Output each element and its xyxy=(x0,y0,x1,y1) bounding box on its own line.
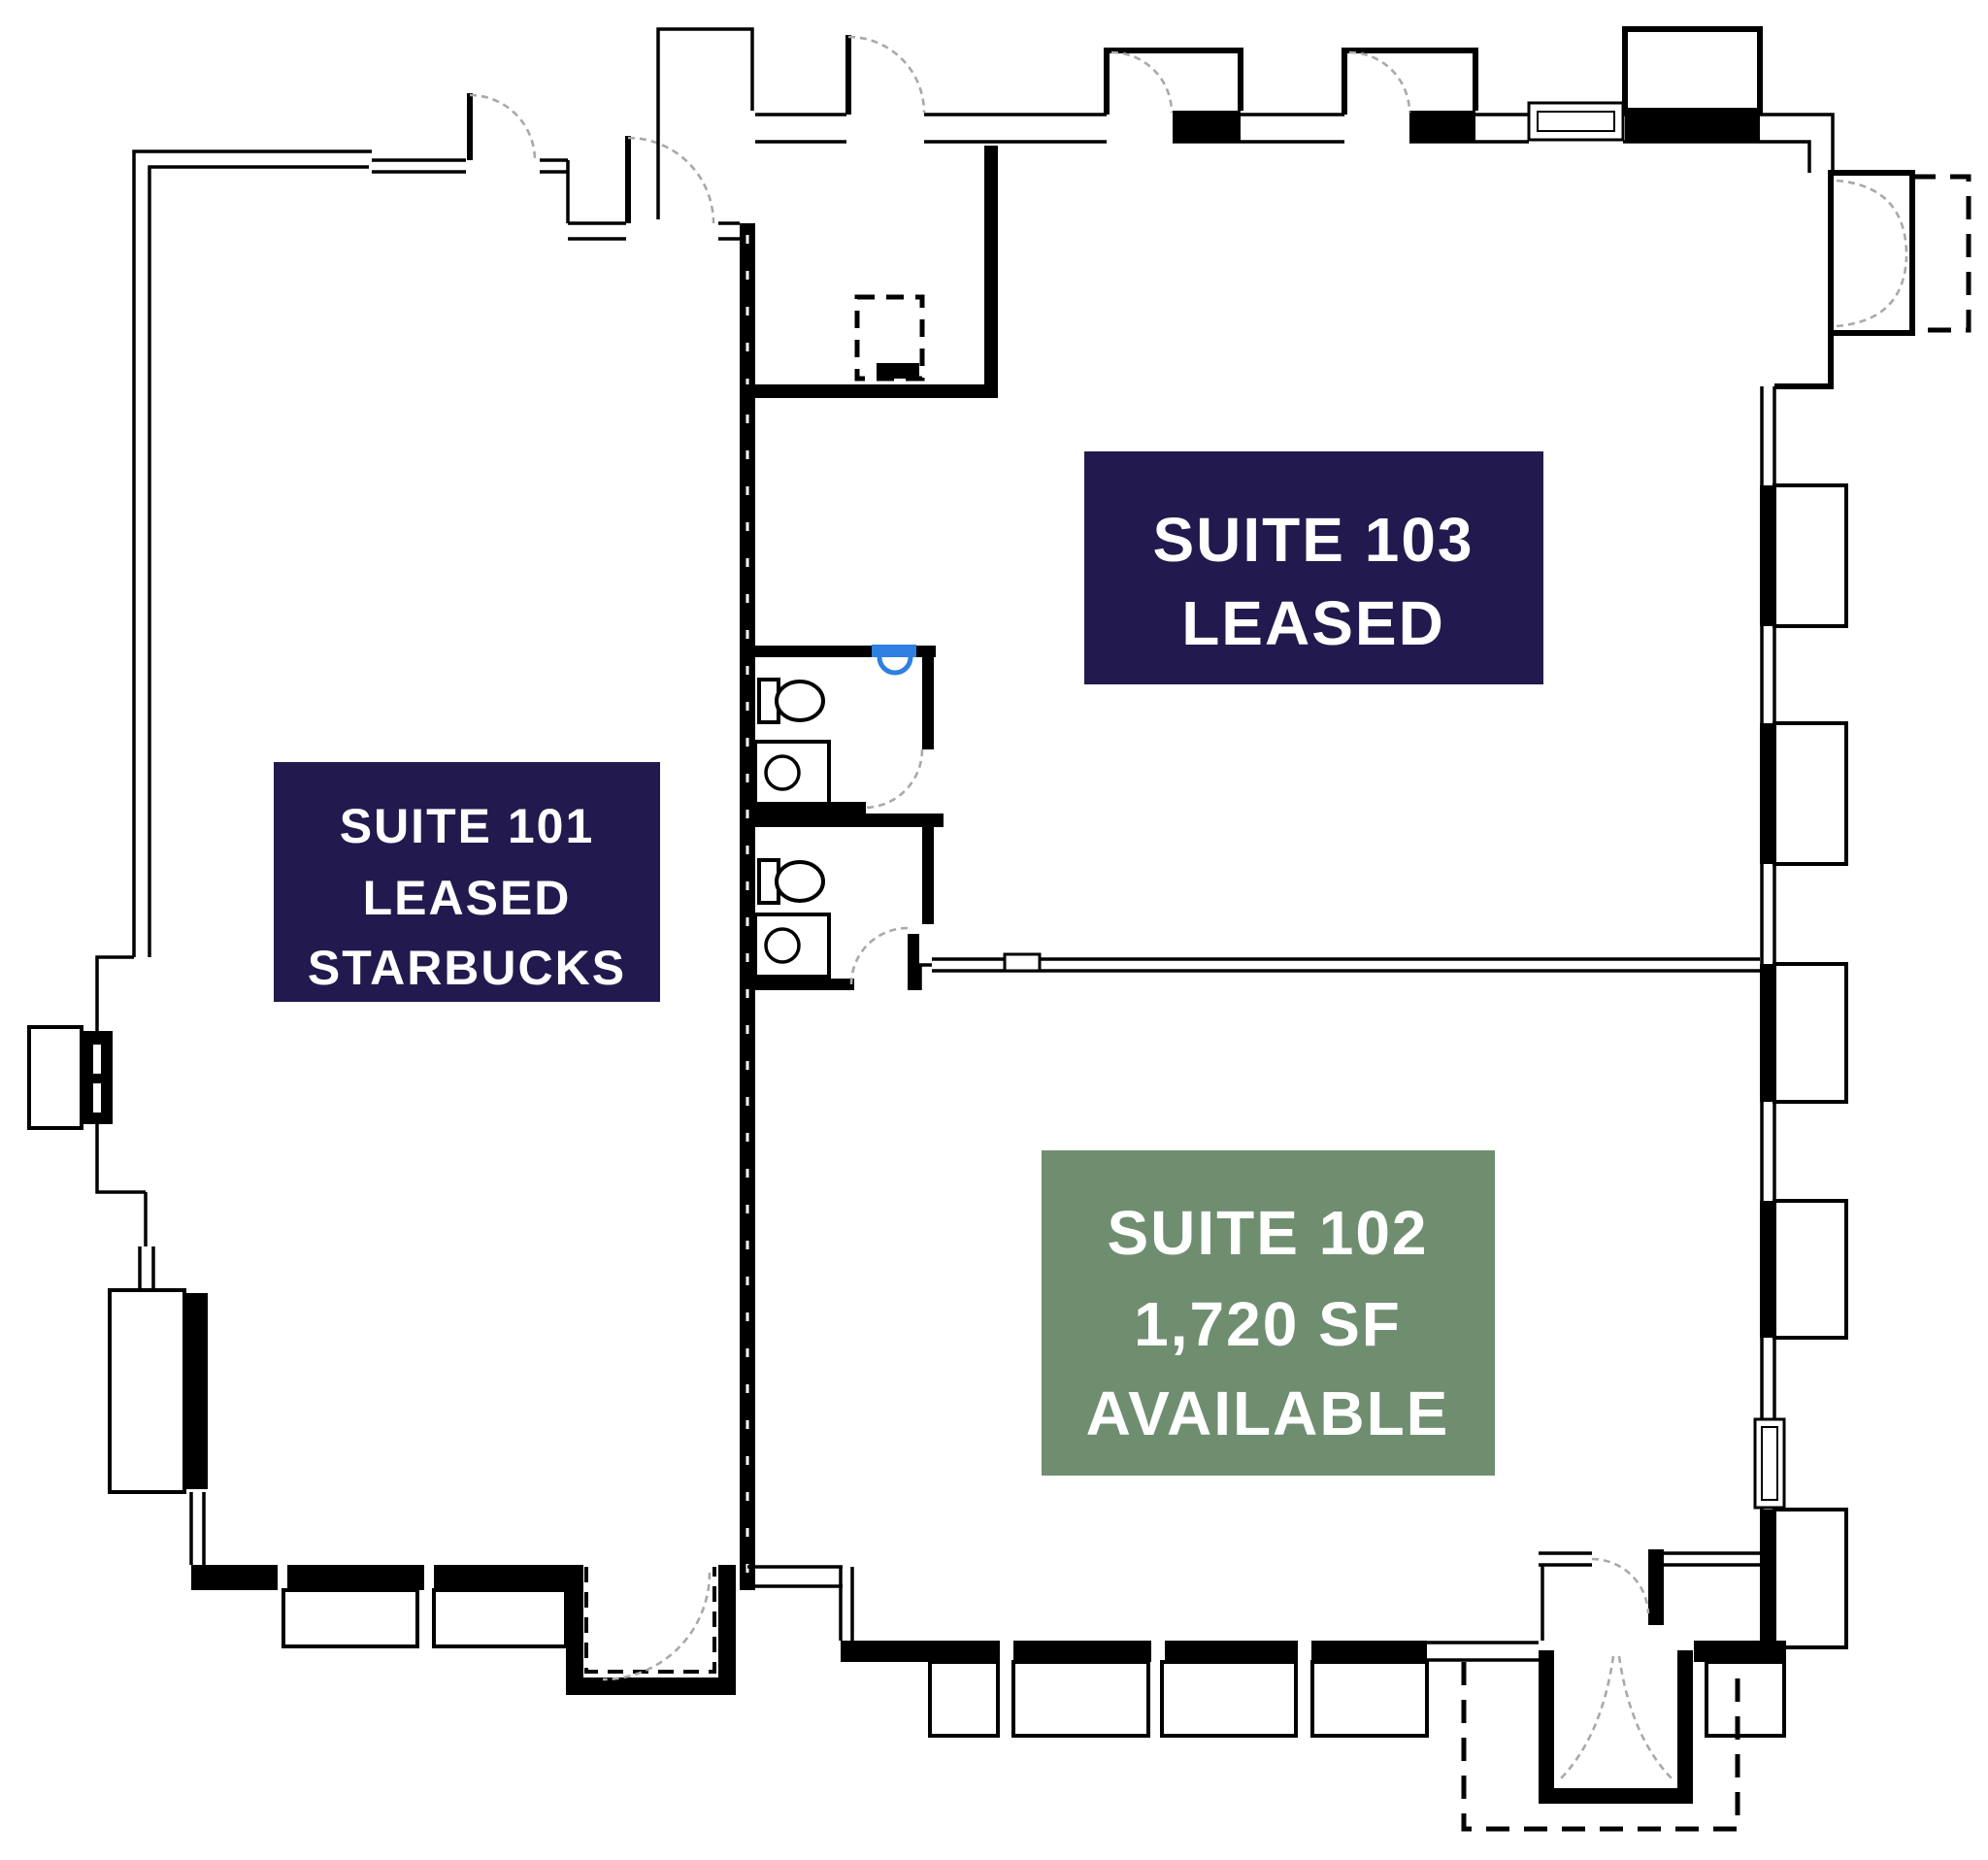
exterior-pier xyxy=(29,1027,82,1128)
entry-hall-wall xyxy=(1539,1553,1592,1641)
wall-fill xyxy=(184,1293,208,1489)
restroom-wall xyxy=(908,934,919,990)
west-wall-lower xyxy=(191,1492,204,1565)
door-swing-arc xyxy=(851,928,908,984)
suite-102-status: AVAILABLE xyxy=(1086,1378,1450,1448)
window-bay xyxy=(1774,485,1846,626)
window-bay xyxy=(1774,723,1846,864)
restroom-wall xyxy=(922,657,934,749)
suite-103-name: SUITE 103 xyxy=(1152,505,1474,575)
north-vestibule xyxy=(658,29,998,398)
window-bay xyxy=(1312,1662,1427,1736)
door-swing-arc xyxy=(848,37,924,113)
entry-alcove xyxy=(1107,50,1241,115)
suite-101-status: LEASED xyxy=(363,871,572,925)
window-bay xyxy=(1774,1201,1846,1338)
suite-101-name: SUITE 101 xyxy=(340,799,595,853)
storefront-panel xyxy=(1755,1419,1784,1508)
window-mullion xyxy=(424,1565,434,1590)
wall-fill xyxy=(1760,964,1774,1102)
door-swing-arc xyxy=(628,138,713,223)
wall-fill xyxy=(1625,111,1760,142)
ne-corner-wall xyxy=(1757,115,1833,173)
vestibule-wall xyxy=(566,1565,583,1693)
entry-canopy-dashed xyxy=(1912,177,1969,330)
entry-canopy-dashed xyxy=(1464,1662,1738,1829)
wall-fill xyxy=(1760,1510,1774,1647)
window-bay xyxy=(1774,964,1846,1102)
window-mullion xyxy=(1000,1641,1013,1662)
vestibule-wall xyxy=(740,384,998,398)
window-mullion xyxy=(278,1565,287,1590)
south-wall xyxy=(747,1567,1786,1736)
window-glass xyxy=(93,1045,101,1074)
vestibule-wall xyxy=(1539,1788,1693,1804)
window-band xyxy=(747,1567,843,1586)
restroom-divider-wall xyxy=(749,814,944,827)
restroom-2 xyxy=(749,827,934,990)
divider-wall xyxy=(932,959,1760,971)
suite-101-tenant: STARBUCKS xyxy=(308,941,626,995)
window-bay xyxy=(1774,1510,1846,1647)
drinking-fountain-icon xyxy=(872,645,916,673)
vestibule-wall xyxy=(1539,1650,1554,1804)
floor-plan-canvas: SUITE 103 LEASED SUITE 101 LEASED STARBU… xyxy=(0,0,1988,1860)
door-swing-arc xyxy=(1111,52,1172,113)
wall-jog xyxy=(1774,333,1831,386)
entry-hall-wall xyxy=(1648,1549,1664,1625)
door-swing-arc xyxy=(1592,1559,1648,1613)
toilet-icon xyxy=(777,681,823,720)
vestibule-enclosure xyxy=(658,29,752,219)
vestibule-wall xyxy=(984,146,998,390)
wall-fill xyxy=(1760,1201,1774,1338)
suite-divider-102-103 xyxy=(920,954,1760,990)
wall-fill xyxy=(1173,111,1241,142)
sw-corner-wall xyxy=(841,1567,852,1641)
door-swing-arc xyxy=(603,1573,710,1679)
suite-102-area: 1,720 SF xyxy=(1134,1289,1402,1359)
suite-102-name: SUITE 102 xyxy=(1107,1198,1428,1268)
suite-102-label: SUITE 102 1,720 SF AVAILABLE xyxy=(1042,1150,1495,1476)
wall-fill xyxy=(1409,111,1475,142)
window-bay xyxy=(283,1590,417,1646)
wall-fill xyxy=(1760,723,1774,864)
divider-step xyxy=(920,965,932,990)
storefront-wall xyxy=(372,160,568,172)
divider-notch xyxy=(1005,954,1040,971)
west-wall xyxy=(140,1192,153,1293)
north-wall xyxy=(755,29,1833,173)
door-swing-arc xyxy=(1349,52,1409,113)
window-bay xyxy=(1706,1662,1784,1736)
window-bay xyxy=(1625,29,1760,111)
east-entry-vestibule xyxy=(1831,173,1912,333)
entry-hall-wall xyxy=(1664,1553,1762,1565)
vestibule-canopy-dashed xyxy=(586,1567,714,1672)
floor-plan-drawing: SUITE 103 LEASED SUITE 101 LEASED STARBU… xyxy=(0,0,1988,1860)
window-mullion xyxy=(1298,1641,1311,1662)
window-bay xyxy=(434,1590,566,1646)
window-bay xyxy=(1162,1662,1296,1736)
suite-101-label: SUITE 101 LEASED STARBUCKS xyxy=(274,762,660,1002)
door-swing-arc xyxy=(864,749,922,808)
sink-icon xyxy=(766,929,799,962)
suite-103-label: SUITE 103 LEASED xyxy=(1084,451,1543,684)
vestibule-wall xyxy=(1677,1650,1693,1804)
utility-fixture xyxy=(877,363,919,379)
south-wall xyxy=(191,1565,566,1590)
suite-101-entry-vestibule xyxy=(566,1565,736,1695)
restrooms xyxy=(749,645,944,990)
door-swing-arc xyxy=(470,95,535,160)
restroom-wall xyxy=(922,827,934,924)
window-bay xyxy=(930,1662,998,1736)
storefront-panel xyxy=(1529,103,1623,140)
window-glass xyxy=(93,1083,101,1113)
window-bay xyxy=(1013,1662,1148,1736)
toilet-icon xyxy=(777,862,823,901)
door-swing-arc xyxy=(1619,1656,1673,1780)
restroom-wall xyxy=(749,979,854,990)
vestibule-wall xyxy=(718,1565,736,1693)
door-swing-arc xyxy=(1559,1656,1613,1780)
suite-103-status: LEASED xyxy=(1181,588,1445,658)
window-mullion xyxy=(1151,1641,1165,1662)
restroom-1 xyxy=(749,645,936,814)
wall-fill xyxy=(1760,485,1774,626)
east-wall xyxy=(1755,173,1969,1647)
north-wall-recessed xyxy=(568,223,740,239)
south-wall-fill xyxy=(1694,1641,1786,1662)
demising-wall xyxy=(740,223,755,1590)
vestibule-wall xyxy=(566,1677,736,1695)
window-band xyxy=(1427,1643,1539,1660)
south-wall-fill xyxy=(841,1641,1427,1662)
sink-icon xyxy=(766,756,799,789)
exterior-pier xyxy=(110,1290,184,1492)
